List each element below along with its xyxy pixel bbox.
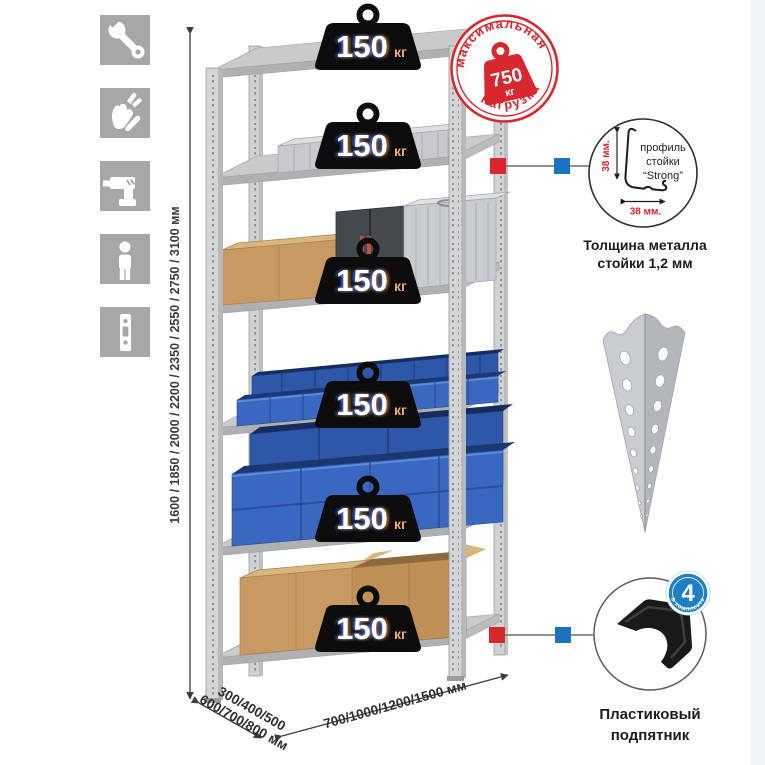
wrench-icon bbox=[100, 15, 150, 65]
badge-unit: кг bbox=[394, 44, 407, 60]
shelf-load-badge-5: 150 кг bbox=[310, 474, 426, 544]
badge-unit: кг bbox=[394, 626, 407, 642]
foot-caption-line2: подпятник bbox=[565, 725, 735, 746]
drill-icon bbox=[100, 161, 150, 211]
badge-unit: кг bbox=[394, 143, 407, 159]
profile-label-2: стойки bbox=[646, 156, 680, 168]
profile-caption-line1: Толщина металла bbox=[560, 236, 730, 254]
corner-profile-image bbox=[597, 302, 693, 534]
gloves-icon bbox=[100, 88, 150, 138]
profile-label-1: профиль bbox=[640, 142, 686, 154]
count-badge-number: 4 bbox=[681, 580, 695, 607]
profile-caption: Толщина металла стойки 1,2 мм bbox=[560, 236, 730, 272]
shelf-load-badge-4: 150 кг bbox=[310, 360, 426, 430]
rack-post-icon bbox=[100, 307, 150, 357]
product-infographic: 150 кг 150 кг 150 кг 150 кг 150 кг bbox=[0, 0, 765, 765]
red-marker-top bbox=[490, 158, 506, 174]
shelf-load-badge-2: 150 кг bbox=[310, 101, 426, 171]
profile-label-3: “Strong” bbox=[643, 170, 683, 182]
foot-caption-line1: Пластиковый bbox=[565, 704, 735, 725]
profile-caption-line2: стойки 1,2 мм bbox=[560, 254, 730, 272]
red-marker-bottom bbox=[489, 627, 505, 643]
count-badge: 4 в комплекте bbox=[666, 571, 710, 615]
plastic-foot-circle: 4 в комплекте bbox=[588, 570, 713, 698]
person-icon bbox=[100, 234, 150, 284]
foot-caption: Пластиковый подпятник bbox=[565, 704, 735, 746]
shelf-load-badge-1: 150 кг bbox=[310, 2, 426, 72]
height-dimension-label: 1600 / 1850 / 2000 / 2200 / 2350 / 2550 … bbox=[168, 25, 184, 705]
profile-detail-circle: 38 мм. 38 мм. профиль стойки “Strong” bbox=[586, 116, 700, 230]
badge-unit: кг bbox=[394, 402, 407, 418]
profile-dim-vertical: 38 мм. bbox=[601, 140, 612, 172]
blue-marker-bottom bbox=[555, 627, 571, 643]
shelf-load-badge-3: 150 кг bbox=[310, 236, 426, 306]
badge-unit: кг bbox=[394, 278, 407, 294]
shelf-load-badge-6: 150 кг bbox=[310, 584, 426, 654]
blue-marker-top bbox=[554, 158, 570, 174]
profile-dim-horizontal: 38 мм. bbox=[630, 207, 662, 218]
badge-unit: кг bbox=[394, 516, 407, 532]
